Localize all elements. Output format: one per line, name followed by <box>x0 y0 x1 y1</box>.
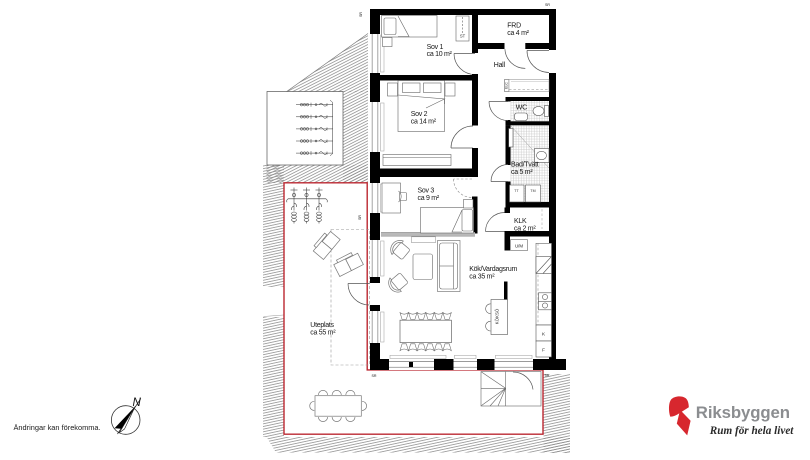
svg-text:SR: SR <box>358 215 362 220</box>
svg-text:FRD: FRD <box>507 23 521 30</box>
svg-text:ca 2 m²: ca 2 m² <box>514 225 536 232</box>
svg-text:N: N <box>133 397 142 409</box>
svg-text:TM: TM <box>530 189 535 193</box>
svg-text:ca 35 m²: ca 35 m² <box>469 273 495 280</box>
svg-text:SR: SR <box>372 374 377 378</box>
svg-text:ca 14 m²: ca 14 m² <box>411 119 437 126</box>
svg-text:Riksbyggen: Riksbyggen <box>696 403 790 422</box>
svg-text:SR: SR <box>359 12 363 17</box>
svg-text:U/M: U/M <box>515 243 523 248</box>
svg-text:Kök/Vardagsrum: Kök/Vardagsrum <box>469 266 517 273</box>
svg-text:ST: ST <box>460 34 466 39</box>
svg-text:ca 4 m²: ca 4 m² <box>507 30 529 37</box>
svg-text:F: F <box>542 348 545 353</box>
svg-text:Ändringar kan förekomma.: Ändringar kan förekomma. <box>14 423 101 432</box>
svg-text:Sov 2: Sov 2 <box>411 111 428 118</box>
svg-text:ca 10 m²: ca 10 m² <box>427 51 453 58</box>
svg-text:KÖKSÖ: KÖKSÖ <box>495 308 500 324</box>
svg-text:Sov 1: Sov 1 <box>427 44 444 51</box>
svg-text:Hall: Hall <box>494 62 506 69</box>
svg-text:ca 9 m²: ca 9 m² <box>418 195 440 202</box>
svg-text:Rum för hela livet: Rum för hela livet <box>709 425 794 437</box>
svg-text:ELC: ELC <box>505 82 509 89</box>
svg-text:Bad/Tvätt: Bad/Tvätt <box>511 162 539 169</box>
svg-text:SR: SR <box>545 3 550 7</box>
svg-text:Sov 3: Sov 3 <box>418 187 435 194</box>
svg-text:ca 5 m²: ca 5 m² <box>511 169 533 176</box>
svg-text:ca 55 m²: ca 55 m² <box>310 330 336 337</box>
svg-text:SR: SR <box>545 374 550 378</box>
svg-text:KLK: KLK <box>514 218 527 225</box>
svg-text:WC: WC <box>516 104 527 111</box>
